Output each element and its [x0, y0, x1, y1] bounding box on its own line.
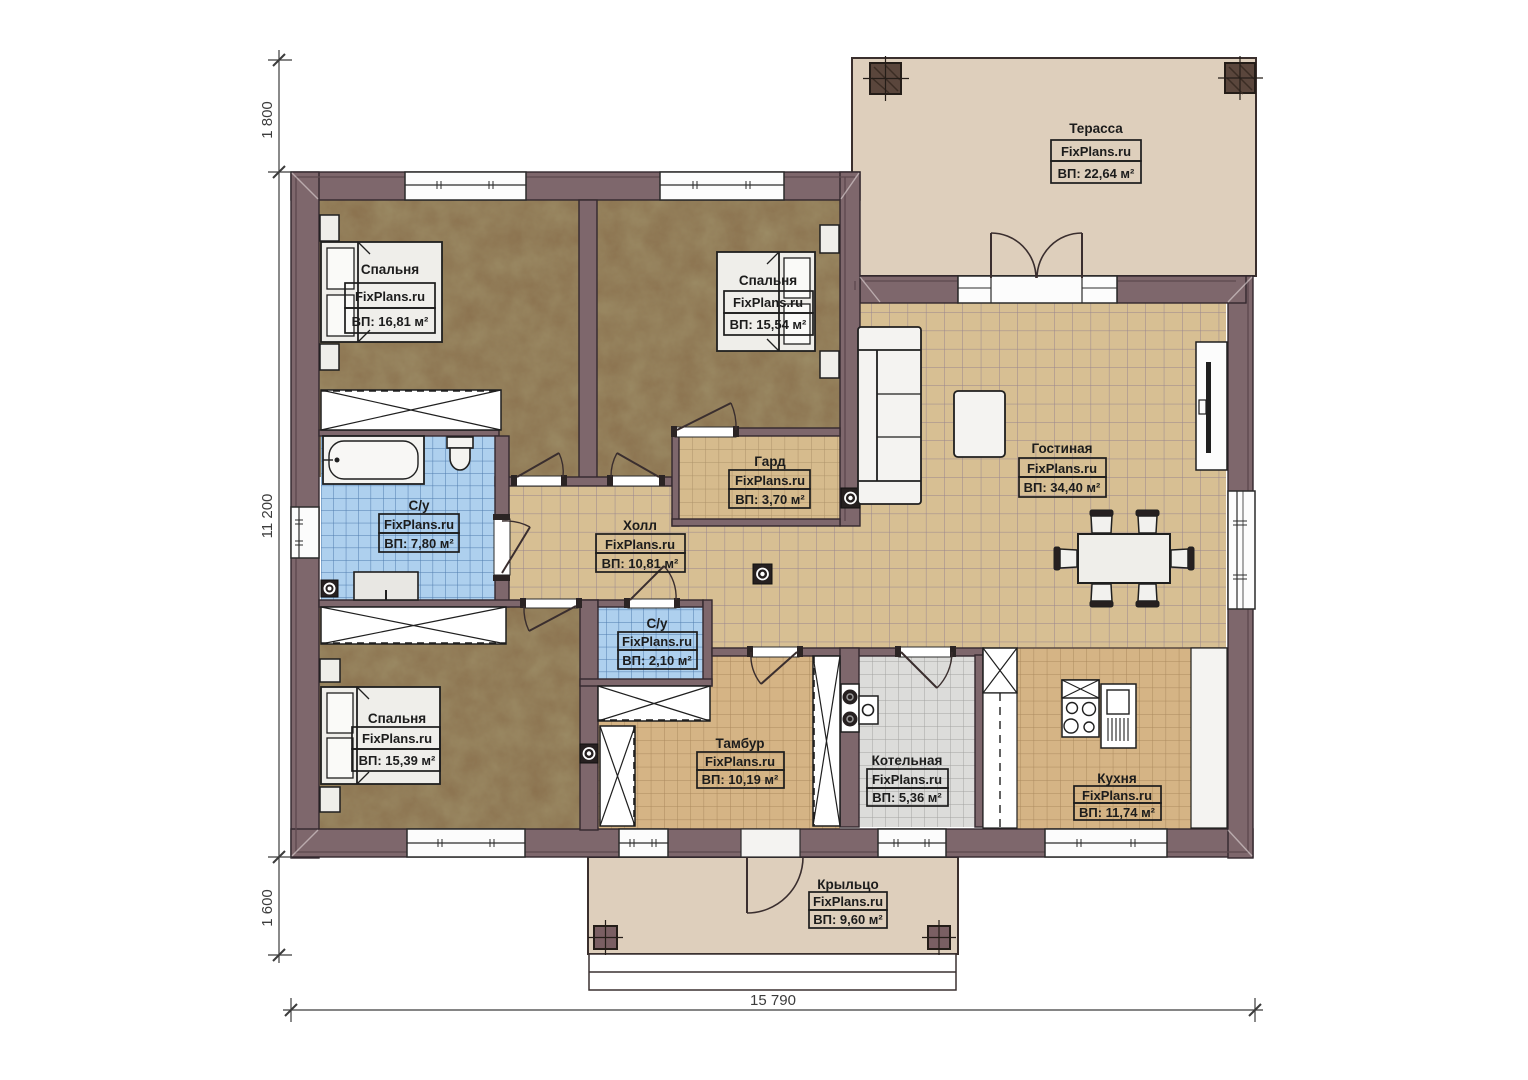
svg-text:FixPlans.ru: FixPlans.ru: [1027, 461, 1097, 476]
svg-text:FixPlans.ru: FixPlans.ru: [384, 517, 454, 532]
svg-text:С/у: С/у: [408, 498, 430, 513]
svg-text:Спальня: Спальня: [739, 273, 797, 288]
svg-text:FixPlans.ru: FixPlans.ru: [1082, 788, 1152, 803]
svg-text:ВП: 9,60 м²: ВП: 9,60 м²: [813, 912, 883, 927]
svg-text:FixPlans.ru: FixPlans.ru: [705, 754, 775, 769]
svg-text:Терасса: Терасса: [1069, 121, 1123, 136]
svg-text:FixPlans.ru: FixPlans.ru: [813, 894, 883, 909]
svg-text:ВП: 10,81 м²: ВП: 10,81 м²: [602, 556, 679, 571]
svg-text:Крыльцо: Крыльцо: [817, 877, 878, 892]
svg-text:ВП: 34,40 м²: ВП: 34,40 м²: [1024, 480, 1101, 495]
svg-text:ВП: 10,19 м²: ВП: 10,19 м²: [702, 772, 779, 787]
svg-text:FixPlans.ru: FixPlans.ru: [733, 295, 803, 310]
svg-text:Спальня: Спальня: [368, 711, 426, 726]
svg-text:FixPlans.ru: FixPlans.ru: [622, 634, 692, 649]
svg-text:ВП: 16,81 м²: ВП: 16,81 м²: [352, 314, 429, 329]
svg-text:FixPlans.ru: FixPlans.ru: [1061, 144, 1131, 159]
svg-text:1 800: 1 800: [259, 101, 276, 139]
svg-text:ВП: 11,74 м²: ВП: 11,74 м²: [1079, 805, 1156, 820]
svg-text:Котельная: Котельная: [872, 753, 943, 768]
svg-text:FixPlans.ru: FixPlans.ru: [605, 537, 675, 552]
svg-text:Гард: Гард: [754, 454, 786, 469]
svg-text:FixPlans.ru: FixPlans.ru: [872, 772, 942, 787]
svg-text:С/у: С/у: [646, 616, 668, 631]
svg-text:Гостиная: Гостиная: [1031, 441, 1092, 456]
svg-text:ВП: 22,64 м²: ВП: 22,64 м²: [1058, 166, 1135, 181]
svg-text:Тамбур: Тамбур: [716, 736, 765, 751]
svg-text:ВП: 5,36 м²: ВП: 5,36 м²: [872, 790, 942, 805]
svg-text:Спальня: Спальня: [361, 262, 419, 277]
svg-text:ВП: 15,39 м²: ВП: 15,39 м²: [359, 753, 436, 768]
svg-text:ВП: 7,80 м²: ВП: 7,80 м²: [384, 536, 454, 551]
svg-text:ВП: 2,10 м²: ВП: 2,10 м²: [622, 653, 692, 668]
svg-text:ВП: 3,70 м²: ВП: 3,70 м²: [735, 492, 805, 507]
svg-text:Кухня: Кухня: [1097, 771, 1136, 786]
svg-text:FixPlans.ru: FixPlans.ru: [355, 289, 425, 304]
svg-text:ВП: 15,54 м²: ВП: 15,54 м²: [730, 317, 807, 332]
svg-text:15 790: 15 790: [750, 992, 796, 1009]
svg-text:Холл: Холл: [623, 518, 657, 533]
svg-text:FixPlans.ru: FixPlans.ru: [362, 731, 432, 746]
svg-text:1 600: 1 600: [259, 889, 276, 927]
svg-text:FixPlans.ru: FixPlans.ru: [735, 473, 805, 488]
svg-text:11 200: 11 200: [259, 494, 276, 539]
